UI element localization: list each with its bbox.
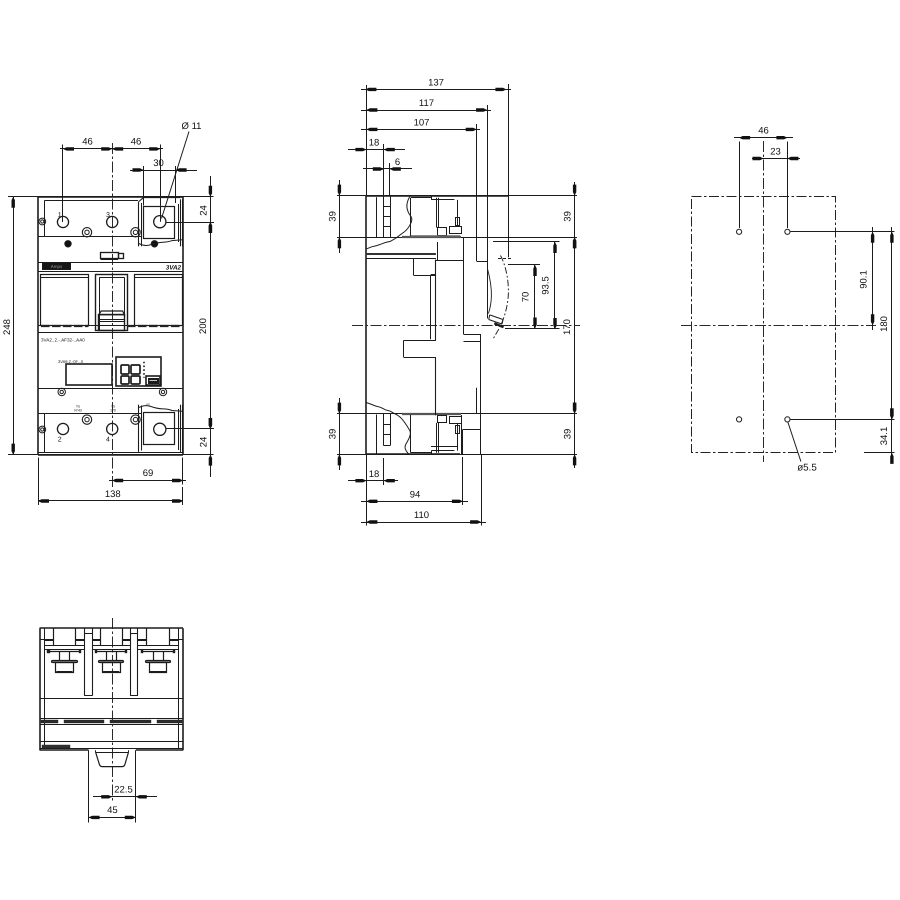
svg-text:1: 1 [58, 212, 62, 219]
svg-text:24: 24 [199, 437, 210, 448]
svg-text:94: 94 [410, 489, 421, 500]
svg-text:39: 39 [563, 211, 574, 222]
svg-text:18: 18 [369, 469, 380, 480]
svg-text:24: 24 [199, 205, 210, 216]
svg-text:248: 248 [2, 319, 13, 335]
svg-text:3VA2: 3VA2 [166, 264, 182, 271]
svg-text:170: 170 [110, 409, 116, 413]
svg-text:3VA2..2.-.AF32-..AA0: 3VA2..2.-.AF32-..AA0 [41, 338, 85, 343]
svg-text:45: 45 [107, 805, 118, 816]
svg-text:46: 46 [758, 125, 769, 136]
svg-text:2: 2 [58, 437, 62, 444]
svg-text:180: 180 [879, 316, 890, 332]
svg-text:39: 39 [327, 429, 338, 440]
svg-text:3: 3 [106, 212, 110, 219]
svg-text:39: 39 [327, 211, 338, 222]
svg-text:70: 70 [521, 292, 532, 303]
svg-text:22.5: 22.5 [114, 784, 133, 795]
svg-text:137: 137 [428, 77, 444, 88]
svg-text:110: 110 [414, 510, 429, 521]
svg-text:46: 46 [131, 137, 142, 148]
svg-text:Amps: Amps [51, 264, 63, 269]
svg-text:200: 200 [198, 318, 209, 334]
svg-text:Ø 11: Ø 11 [182, 121, 202, 132]
svg-text:6: 6 [395, 157, 400, 168]
svg-text:23: 23 [770, 146, 781, 157]
svg-text:46: 46 [82, 137, 93, 148]
svg-text:117: 117 [419, 98, 434, 109]
svg-text:34.1: 34.1 [879, 427, 890, 446]
svg-text:N°43: N°43 [74, 409, 82, 413]
svg-text:93.5: 93.5 [541, 276, 552, 295]
svg-text:138: 138 [105, 489, 121, 500]
svg-text:39: 39 [563, 429, 574, 440]
svg-text:18: 18 [369, 138, 380, 149]
svg-text:107: 107 [414, 117, 430, 128]
svg-text:170: 170 [562, 319, 573, 335]
svg-text:ø5.5: ø5.5 [797, 463, 817, 474]
svg-text:4: 4 [106, 437, 110, 444]
svg-text:90.1: 90.1 [859, 270, 870, 289]
svg-text:69: 69 [143, 468, 154, 479]
svg-text:30: 30 [153, 158, 164, 169]
svg-text:3VA9.2.-0F...0: 3VA9.2.-0F...0 [58, 359, 84, 364]
